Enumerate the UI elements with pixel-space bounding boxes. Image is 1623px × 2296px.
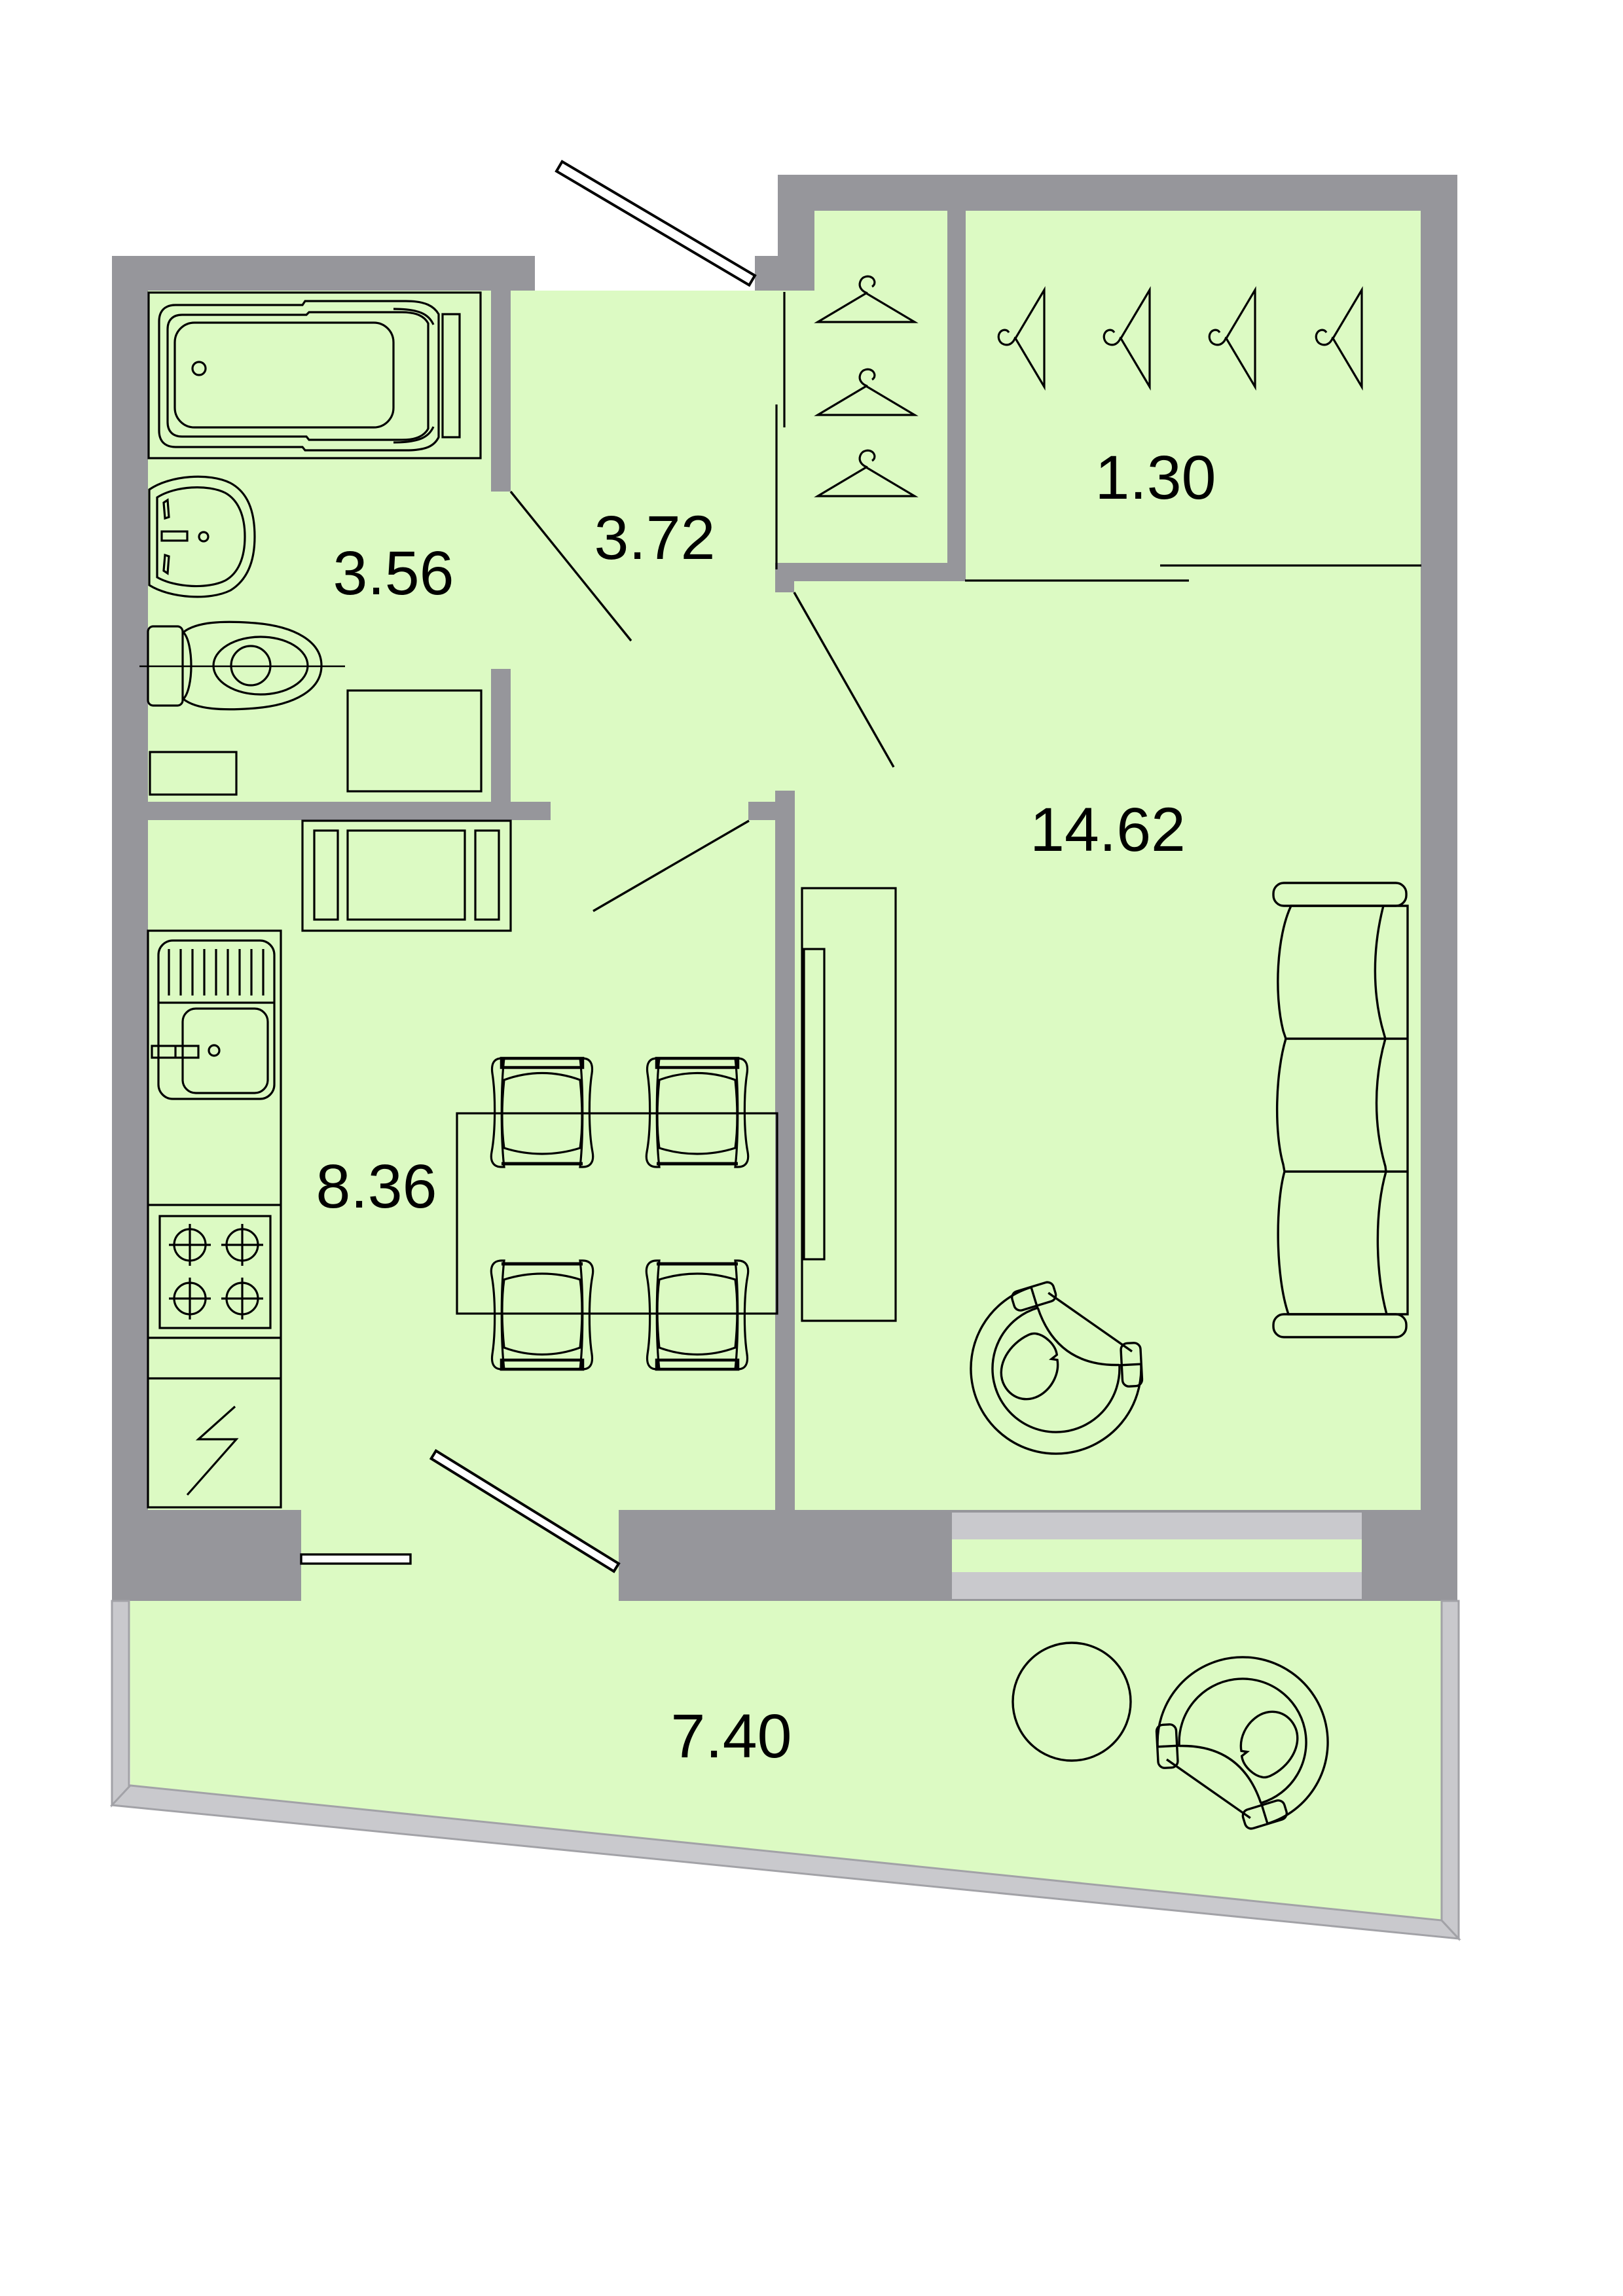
svg-text:14.62: 14.62 [1030, 795, 1186, 865]
svg-text:3.72: 3.72 [594, 503, 716, 573]
svg-text:1.30: 1.30 [1095, 443, 1216, 512]
svg-text:3.56: 3.56 [333, 539, 454, 608]
svg-text:8.36: 8.36 [316, 1152, 437, 1221]
svg-text:7.40: 7.40 [671, 1702, 792, 1771]
